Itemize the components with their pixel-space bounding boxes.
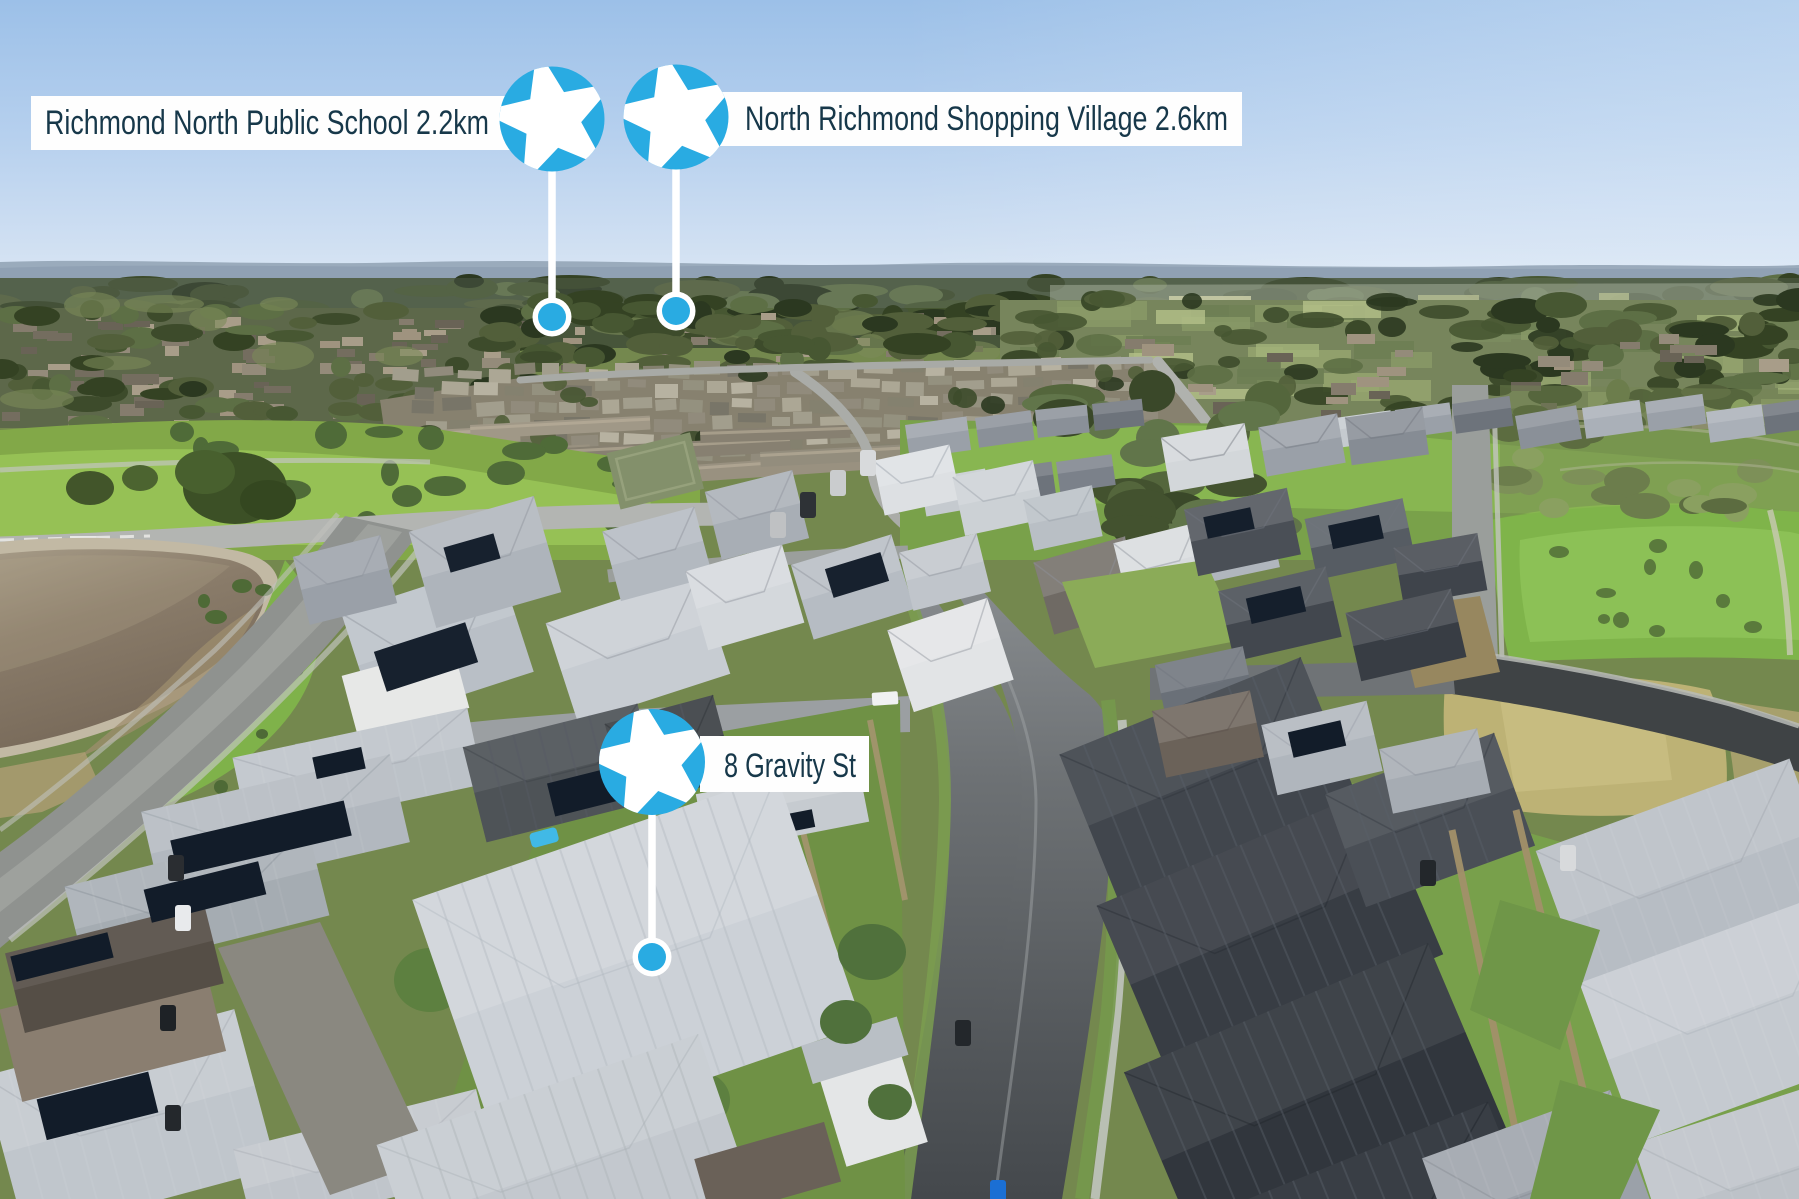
svg-text:8 Gravity St: 8 Gravity St bbox=[724, 747, 856, 785]
svg-text:Richmond North Public School 2: Richmond North Public School 2.2km bbox=[45, 104, 489, 142]
svg-text:North Richmond Shopping Villag: North Richmond Shopping Village 2.6km bbox=[745, 100, 1228, 138]
